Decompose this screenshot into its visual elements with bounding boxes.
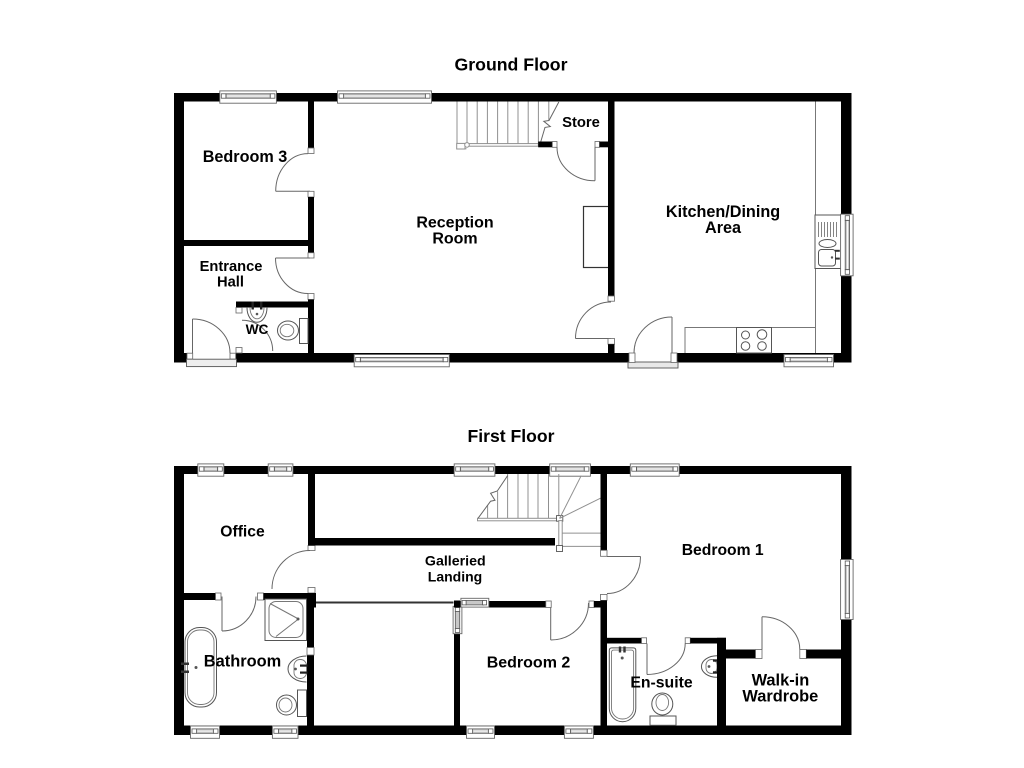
svg-text:Galleried: Galleried	[425, 554, 486, 570]
svg-text:Bedroom 3: Bedroom 3	[203, 148, 288, 166]
svg-text:Store: Store	[562, 115, 600, 131]
svg-text:Hall: Hall	[217, 275, 244, 291]
svg-text:Room: Room	[432, 231, 477, 248]
svg-text:First Floor: First Floor	[468, 426, 555, 446]
svg-text:Entrance: Entrance	[200, 259, 263, 275]
svg-text:Ground Floor: Ground Floor	[455, 55, 568, 75]
svg-text:Area: Area	[705, 219, 742, 237]
svg-text:Bedroom 2: Bedroom 2	[487, 655, 571, 672]
svg-text:WC: WC	[246, 322, 269, 337]
svg-text:Office: Office	[220, 523, 265, 540]
svg-text:En-suite: En-suite	[630, 674, 693, 691]
svg-text:Reception: Reception	[416, 215, 493, 232]
svg-text:Bedroom 1: Bedroom 1	[682, 542, 764, 559]
svg-text:Landing: Landing	[428, 569, 482, 585]
svg-text:Wardrobe: Wardrobe	[742, 687, 818, 705]
svg-text:Bathroom: Bathroom	[204, 652, 281, 670]
